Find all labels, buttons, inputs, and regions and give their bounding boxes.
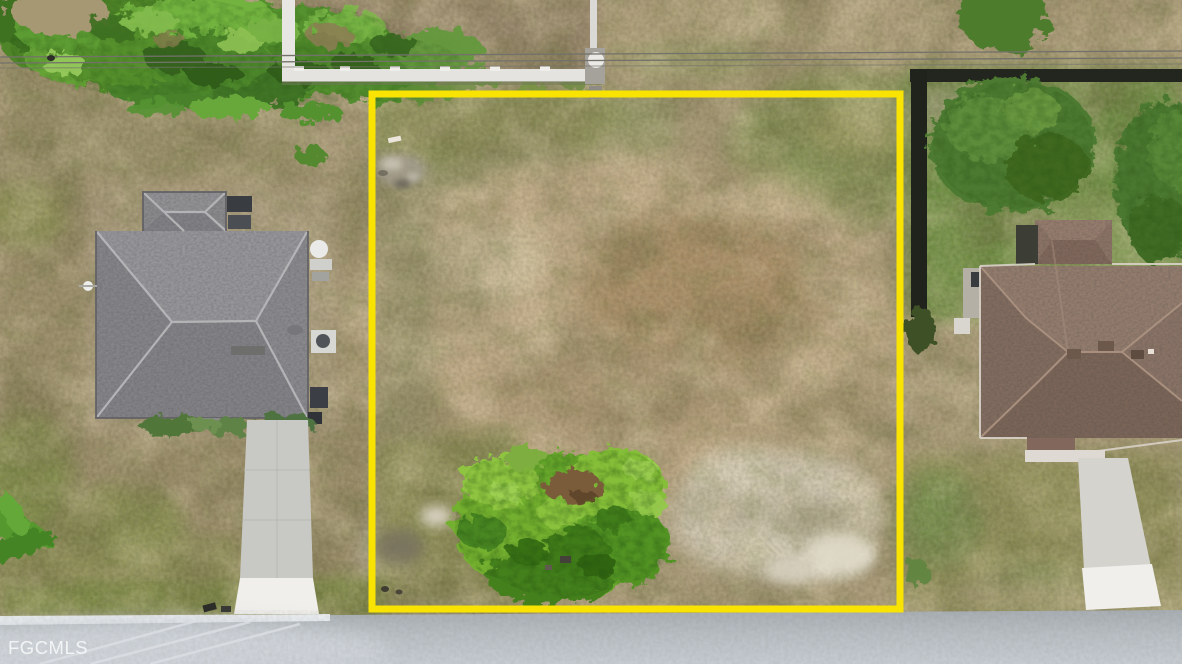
svg-text:FGCMLS: FGCMLS <box>8 637 88 658</box>
